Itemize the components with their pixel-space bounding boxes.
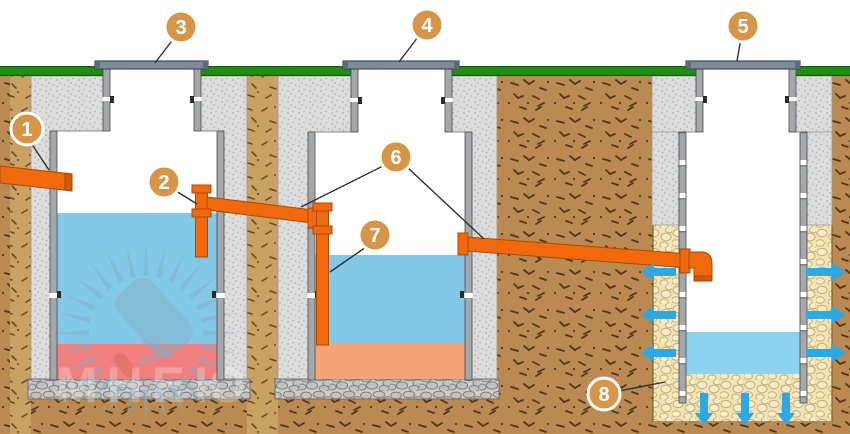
well-neck-opening (703, 62, 789, 132)
tank2-neck-opening (358, 62, 445, 132)
tee2-flange-mid (313, 226, 332, 234)
callout-3-number: 3 (175, 17, 186, 39)
tee2-flange-top (313, 203, 332, 211)
tank1-neck-opening (110, 62, 194, 132)
tank1-outlet-tee-pipe (196, 190, 208, 257)
pipe-flange-2 (458, 233, 468, 255)
callout-1-number: 1 (21, 119, 32, 141)
tank2-lid (343, 61, 459, 69)
callout-2-number: 2 (158, 172, 169, 194)
watermark-text: МНЕЮ (56, 357, 255, 413)
callout-5-number: 5 (737, 16, 748, 38)
tank2-sludge (315, 343, 465, 379)
callout-2: 2 (148, 166, 180, 198)
callout-8-number: 8 (598, 384, 609, 406)
callout-4: 4 (411, 9, 443, 41)
tee1-flange-top (192, 185, 211, 193)
callout-8: 8 (588, 378, 620, 410)
tank2-water (315, 255, 465, 343)
tank2-base-slab (275, 379, 499, 399)
tee1-flange-mid (192, 209, 211, 217)
callout-7: 7 (359, 219, 391, 251)
callout-7-number: 7 (369, 225, 380, 247)
callout-5: 5 (727, 10, 759, 42)
well-lid (686, 61, 800, 69)
tank1-lid (95, 61, 208, 69)
callout-3: 3 (165, 11, 197, 43)
callout-6-number: 6 (390, 147, 401, 169)
manhole-lids (95, 61, 800, 69)
callout-4-number: 4 (421, 15, 433, 37)
well-shell-right (805, 132, 832, 225)
callout-1: 1 (11, 113, 43, 145)
septic-system-diagram: МНЕЮ (0, 0, 850, 434)
well-elbow-tip (694, 276, 712, 281)
well-ring-wall-right (800, 132, 807, 403)
well-shell-left (652, 132, 679, 225)
inlet-pipe-tip (65, 173, 72, 191)
well-water (686, 332, 800, 374)
callout-6: 6 (380, 141, 412, 173)
diagram-canvas: МНЕЮ (0, 0, 850, 434)
